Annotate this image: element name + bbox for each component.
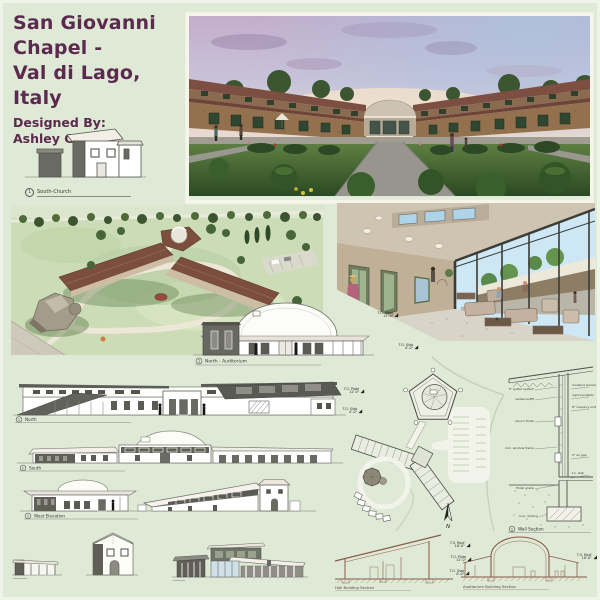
- svg-text:North - Auditorium: North - Auditorium: [205, 359, 247, 365]
- level-marker-icon: ◢: [466, 570, 470, 576]
- north-auditorium-label: 1 North - Auditorium: [195, 358, 321, 365]
- illegible-label: [173, 580, 185, 581]
- west-right-building: [138, 480, 300, 512]
- entrance: [159, 391, 206, 415]
- hatched-panel: [249, 401, 269, 413]
- courtyard-rendering-image: [189, 16, 590, 196]
- west-elevation-drawing: 1 West Elevation: [18, 475, 318, 521]
- level-marker-icon: ◢: [361, 388, 365, 394]
- auditorium-section-label: Auditorium Building Section: [463, 584, 549, 590]
- courtyard-exterior-rendering: [186, 13, 593, 203]
- south-church-elevation-drawing: [23, 111, 148, 187]
- old-church-plan: [363, 468, 387, 486]
- center-section: [119, 445, 211, 463]
- svg-text:North: North: [25, 417, 37, 422]
- presentation-board: San Giovanni Chapel - Val di Lago, Italy…: [0, 0, 600, 600]
- svg-text:Auditorium Building Section: Auditorium Building Section: [463, 584, 517, 589]
- north-label: 1 North: [15, 417, 131, 423]
- level-marker-icon: ◢: [359, 408, 363, 414]
- level-marker-slab: T.O. Slab0'-0" ◢: [387, 341, 419, 353]
- svg-text:conc. footing: conc. footing: [519, 514, 539, 518]
- potted-plant: [445, 269, 453, 277]
- svg-text:2" air gap: 2" air gap: [572, 453, 587, 457]
- interior-window: [415, 277, 429, 303]
- level-marker-roof-auditorium: T.O. Roof18'-0" ◢: [565, 551, 597, 563]
- right-colonnade-wing: [211, 447, 333, 463]
- svg-text:1: 1: [198, 359, 201, 364]
- level-marker-roof-hall: T.O. Roof18'-0" ◢: [438, 539, 470, 551]
- svg-text:1: 1: [22, 466, 25, 471]
- west-left-building: [24, 480, 136, 511]
- page-title-line2: Chapel -: [13, 36, 193, 61]
- connector-path: [406, 421, 426, 449]
- level-marker-icon: ◢: [593, 554, 597, 560]
- left-wing: [29, 447, 119, 463]
- west-elevation-label: 1 West Elevation: [24, 513, 138, 519]
- north-elevation-drawing: 1 North: [11, 371, 348, 423]
- east-wing-plan: [410, 457, 454, 510]
- level-marker-plate: T.O. Plate12'-0" ◢: [365, 309, 399, 321]
- level-marker-icon: ◢: [466, 542, 470, 548]
- level-marker-plate-hall: T.O. Plate12'-0" ◢: [438, 553, 472, 565]
- level-marker-icon: ◢: [415, 344, 419, 350]
- wall-section-notes: 5" gutter system vented soffit stucco fi…: [505, 383, 597, 518]
- orange-umbrella: [101, 337, 106, 342]
- svg-text:vented soffit: vented soffit: [515, 397, 535, 401]
- svg-text:alum. window frame: alum. window frame: [505, 446, 534, 450]
- svg-text:West Elevation: West Elevation: [34, 514, 65, 519]
- illegible-label: [13, 578, 27, 579]
- wall-section-drawing: 5" gutter system vented soffit stucco fi…: [505, 359, 597, 535]
- church-front-elevation-drawing: [85, 531, 139, 581]
- dark-wing: [201, 322, 241, 355]
- svg-text:Hall Building Section: Hall Building Section: [335, 585, 375, 590]
- hall-section-label: Hall Building Section: [335, 585, 411, 591]
- level-marker-icon: ◢: [395, 312, 399, 318]
- central-dome-entry: [364, 100, 416, 136]
- level-marker-icon: ◢: [468, 556, 472, 562]
- south-label: 1 South: [19, 465, 125, 471]
- south-elevation-drawing: 1 South: [15, 423, 345, 473]
- shed-elevation-drawing: [11, 551, 63, 581]
- svg-text:t.o. slab: t.o. slab: [572, 471, 584, 475]
- clerestory-building-elevation-drawing: [171, 537, 309, 583]
- site-plan-drawing: N: [336, 355, 508, 533]
- svg-text:stucco finish: stucco finish: [515, 419, 534, 423]
- svg-text:8" masonry unit: 8" masonry unit: [572, 405, 597, 409]
- svg-text:1: 1: [18, 417, 21, 422]
- svg-text:moisture barrier: moisture barrier: [572, 383, 597, 387]
- svg-text:5" gutter system: 5" gutter system: [509, 387, 534, 391]
- south-church-label: 1 South-Church: [25, 188, 131, 197]
- svg-text:South: South: [29, 466, 42, 471]
- svg-text:rigid insulation: rigid insulation: [572, 393, 594, 397]
- level-marker-plate-2: T.O. Plate12'-0" ◢: [331, 385, 365, 397]
- page-title-line1: San Giovanni: [13, 11, 193, 36]
- page-title-line3: Val di Lago, Italy: [13, 61, 193, 111]
- svg-text:finish grade: finish grade: [516, 486, 534, 490]
- svg-text:1: 1: [27, 514, 30, 519]
- fountain: [155, 294, 167, 301]
- level-marker-slab-hall: T.O. Slab0'-0" ◢: [438, 567, 470, 579]
- level-marker-slab-2: T.O. Slab0'-0" ◢: [331, 405, 363, 417]
